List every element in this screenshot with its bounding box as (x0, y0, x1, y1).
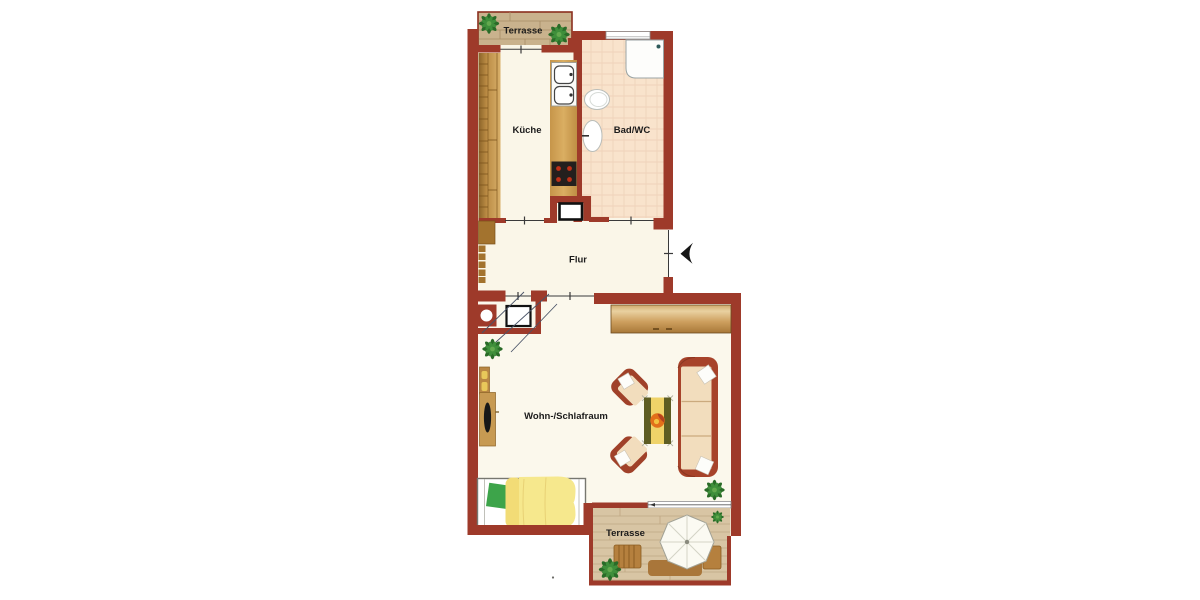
svg-text:Terrasse: Terrasse (606, 528, 645, 539)
svg-text:Küche: Küche (512, 125, 541, 136)
svg-text:Wohn-/Schlafraum: Wohn-/Schlafraum (524, 411, 608, 422)
svg-text:Bad/WC: Bad/WC (614, 125, 651, 136)
svg-text:Terrasse: Terrasse (504, 26, 543, 37)
svg-text:Flur: Flur (569, 255, 587, 266)
